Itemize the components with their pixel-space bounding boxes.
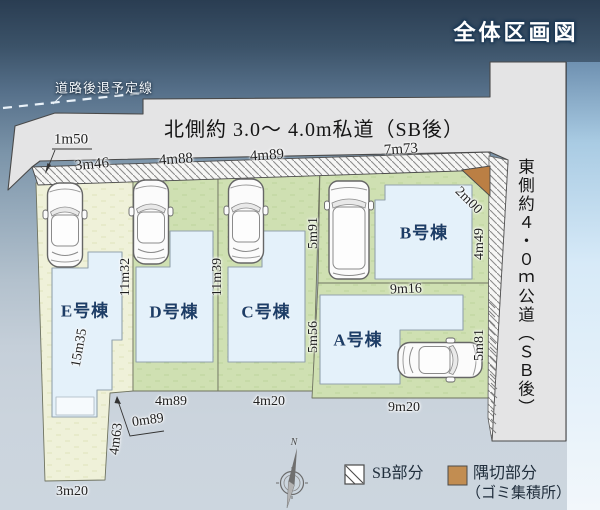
dim-4m88: 4m88 xyxy=(158,151,193,168)
dim-5m91: 5m91 xyxy=(307,217,321,249)
site-plan-drawing xyxy=(0,0,600,510)
lot-label-b: B号棟 xyxy=(400,225,448,242)
legend-sb-label: SB部分 xyxy=(372,466,424,482)
car-lot-a xyxy=(398,338,482,382)
dim-9m16: 9m16 xyxy=(390,282,422,297)
dim-3m46: 3m46 xyxy=(74,156,109,174)
legend-corner-note: （ゴミ集積所） xyxy=(466,487,571,502)
lot-label-c: C号棟 xyxy=(241,304,290,321)
north-road-label: 北側約 3.0〜 4.0m私道（SB後） xyxy=(164,120,464,140)
leader-arrow-0m89 xyxy=(115,396,122,404)
lot-label-d: D号棟 xyxy=(149,304,198,321)
dim-11m39: 11m39 xyxy=(211,258,225,296)
dim-5m56: 5m56 xyxy=(307,321,321,353)
compass-needle-north xyxy=(289,448,298,485)
dim-4m89-top: 4m89 xyxy=(249,147,284,164)
lot-label-e: E号棟 xyxy=(61,303,109,320)
dim-1m50: 1m50 xyxy=(54,133,88,148)
dim-4m89-bottom: 4m89 xyxy=(155,395,187,409)
lot-label-a: A号棟 xyxy=(333,332,382,349)
dim-9m20: 9m20 xyxy=(388,401,420,415)
setback-line-label: 道路後退予定線 xyxy=(55,82,153,95)
dim-4m49: 4m49 xyxy=(473,228,487,260)
east-road-label: 東側約４・０ｍ公道（ＳＢ後） xyxy=(516,158,533,417)
car-lot-e xyxy=(43,183,87,267)
sky-right-strip xyxy=(567,62,600,510)
car-lot-d xyxy=(129,180,173,264)
site-plan: 全体区画図 道路後退予定線 北側約 3.0〜 4.0m私道（SB後） 東側約４・… xyxy=(0,0,600,510)
dim-11m32: 11m32 xyxy=(119,258,133,296)
plan-title: 全体区画図 xyxy=(453,22,578,44)
dim-7m73: 7m73 xyxy=(383,141,418,158)
compass xyxy=(276,448,308,508)
legend-corner-label: 隅切部分 xyxy=(473,466,537,482)
legend-corner-swatch xyxy=(448,466,467,485)
dim-4m20: 4m20 xyxy=(253,395,285,409)
compass-north-label: N xyxy=(291,438,298,448)
car-lot-b xyxy=(325,181,374,279)
building-e-lower-block xyxy=(56,397,94,415)
dim-3m20: 3m20 xyxy=(56,485,88,499)
dim-5m81: 5m81 xyxy=(473,329,487,361)
car-lot-c xyxy=(224,179,268,263)
